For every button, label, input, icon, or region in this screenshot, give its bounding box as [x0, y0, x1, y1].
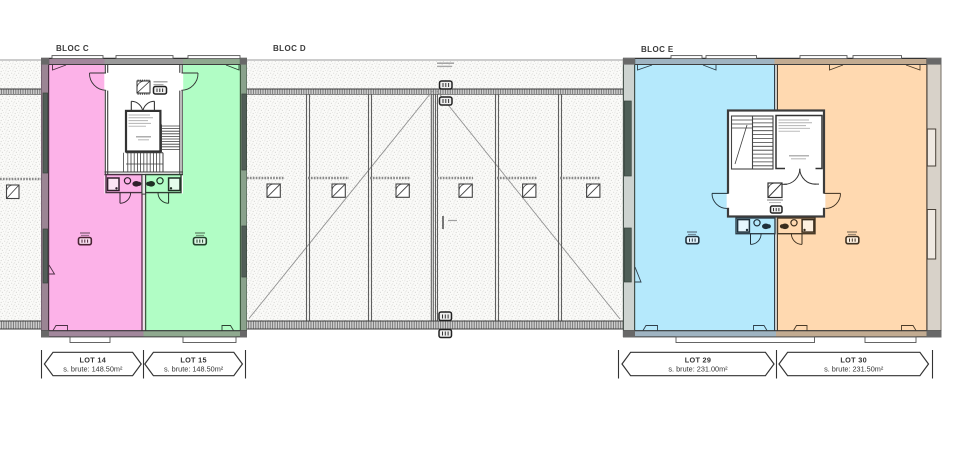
svg-text:s. brute: 148.50m²: s. brute: 148.50m²: [63, 365, 123, 374]
svg-text:LOT 29: LOT 29: [685, 356, 712, 365]
svg-text:s. brute: 231.50m²: s. brute: 231.50m²: [824, 365, 884, 374]
svg-text:s. brute: 231.00m²: s. brute: 231.00m²: [668, 365, 728, 374]
svg-text:BLOC D: BLOC D: [273, 44, 306, 53]
svg-text:LOT 30: LOT 30: [840, 356, 867, 365]
svg-text:LOT 14: LOT 14: [80, 356, 107, 365]
svg-text:s. brute: 148.50m²: s. brute: 148.50m²: [164, 365, 224, 374]
svg-text:LOT 15: LOT 15: [180, 356, 207, 365]
svg-text:BLOC C: BLOC C: [56, 44, 89, 53]
svg-text:BLOC E: BLOC E: [641, 45, 674, 54]
